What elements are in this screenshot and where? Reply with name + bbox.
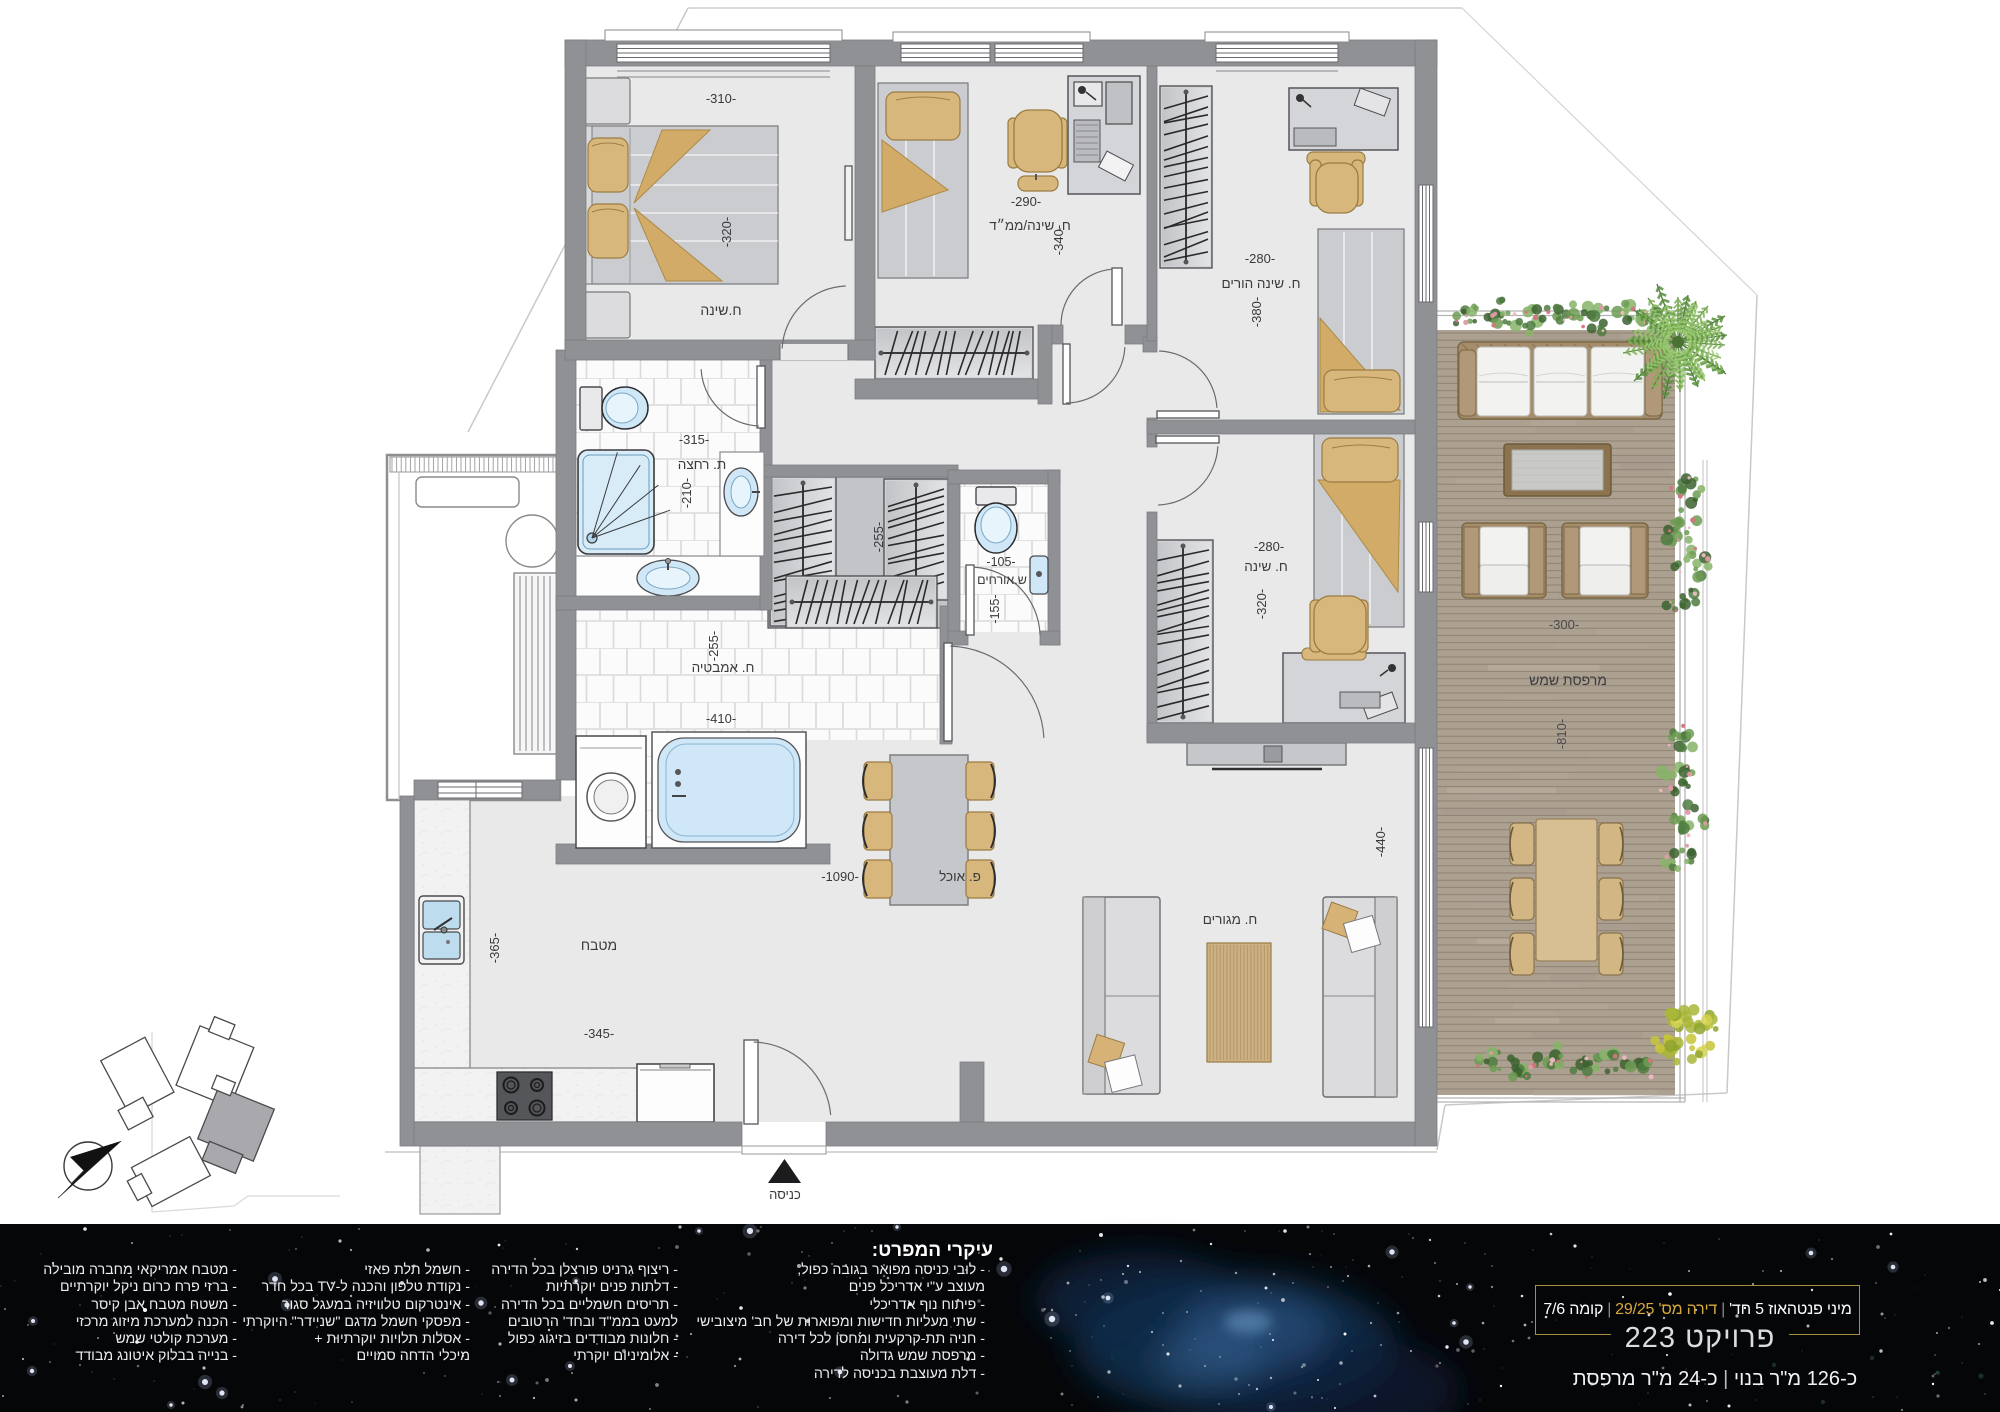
- svg-text:-320-: -320-: [719, 217, 734, 247]
- svg-text:-410-: -410-: [706, 711, 736, 726]
- svg-text:-345-: -345-: [584, 1026, 614, 1041]
- svg-text:-310-: -310-: [706, 91, 736, 106]
- svg-text:-300-: -300-: [1549, 617, 1579, 632]
- svg-text:-340-: -340-: [1051, 225, 1066, 255]
- svg-text:-320-: -320-: [1254, 589, 1269, 619]
- svg-text:-1090-: -1090-: [821, 869, 859, 884]
- svg-text:-315-: -315-: [679, 432, 709, 447]
- svg-text:ח. מגורים: ח. מגורים: [1203, 912, 1257, 927]
- svg-text:ח. שינה הורים: ח. שינה הורים: [1222, 276, 1301, 291]
- svg-text:ש.אורחים: ש.אורחים: [977, 573, 1027, 587]
- svg-text:-255-: -255-: [706, 631, 721, 661]
- svg-text:-365-: -365-: [487, 933, 502, 963]
- svg-text:-810-: -810-: [1554, 719, 1569, 749]
- svg-text:-210-: -210-: [679, 478, 694, 508]
- svg-text:-440-: -440-: [1373, 827, 1388, 857]
- svg-text:-155-: -155-: [988, 594, 1002, 623]
- svg-text:-280-: -280-: [1254, 539, 1284, 554]
- svg-text:ת. רחצה: ת. רחצה: [678, 457, 726, 472]
- svg-text:-255-: -255-: [871, 522, 886, 552]
- svg-text:-280-: -280-: [1245, 251, 1275, 266]
- svg-text:-105-: -105-: [986, 555, 1015, 569]
- svg-text:-290-: -290-: [1011, 194, 1041, 209]
- svg-text:ח. שינה: ח. שינה: [1244, 559, 1288, 574]
- svg-text:כניסה: כניסה: [769, 1187, 801, 1202]
- svg-text:מטבח: מטבח: [581, 937, 617, 953]
- svg-text:ח.שינה: ח.שינה: [700, 302, 741, 318]
- svg-text:-380-: -380-: [1249, 297, 1264, 327]
- svg-text:מרפסת שמש: מרפסת שמש: [1529, 672, 1607, 688]
- svg-text:פ. אוכל: פ. אוכל: [939, 869, 981, 884]
- svg-text:ח. אמבטיה: ח. אמבטיה: [692, 660, 755, 675]
